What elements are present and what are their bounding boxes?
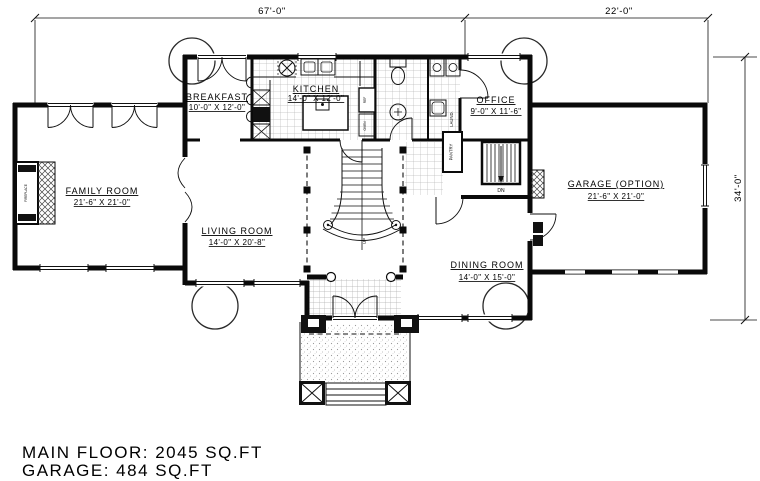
area-summary: MAIN FLOOR: 2045 SQ.FT GARAGE: 484 SQ.FT <box>22 443 263 480</box>
window-living-bottom-1 <box>196 279 244 287</box>
garage-bottom-wall-vents <box>565 270 678 273</box>
ref-label: REF <box>363 97 367 103</box>
garage-name: GARAGE (OPTION) <box>568 179 665 189</box>
window-family-bottom-2 <box>106 264 154 272</box>
breakfast-size: 10'-0" X 12'-0" <box>189 103 246 112</box>
corner-arc-top-right <box>501 38 547 84</box>
family-room-name: FAMILY ROOM <box>66 186 139 196</box>
oven-label: OVEN <box>363 121 367 131</box>
living-room-name: LIVING ROOM <box>201 226 272 236</box>
french-door-family-1 <box>48 102 94 128</box>
corner-arc-bottom-right <box>483 283 529 329</box>
entry-tile-floor <box>309 279 401 317</box>
pantry-label: PANTRY <box>449 143 454 160</box>
dim-right-side: 34'-0" <box>733 174 744 202</box>
floor-plan-page: UP REF OVEN <box>0 0 760 481</box>
refrigerator: REF <box>359 88 375 112</box>
kitchen-name: KITCHEN <box>293 84 340 94</box>
living-room-size: 14'-0" X 20'-8" <box>209 238 266 247</box>
pantry-closet: PANTRY <box>443 132 462 172</box>
corner-arc-top-left <box>169 38 215 84</box>
kitchen-hall-door <box>340 140 362 162</box>
kitchen-size: 14'-0" X 12'-0" <box>288 94 345 103</box>
laundry-label: LAUND. <box>449 111 454 126</box>
rear-hall-door <box>436 197 463 224</box>
fireplace: FIREPLACE <box>16 162 55 224</box>
office-name: OFFICE <box>477 95 516 105</box>
family-room-size: 21'-6" X 21'-0" <box>74 198 131 207</box>
garage-size: 21'-6" X 21'-0" <box>588 192 645 201</box>
entry-column-left <box>327 273 336 282</box>
office-door <box>460 70 488 98</box>
window-office-top <box>468 53 520 61</box>
family-living-opening <box>178 157 192 223</box>
stair-up-label: UP <box>362 238 367 244</box>
foyer-colonnade <box>304 147 407 282</box>
powder-laundry-tile-floor <box>375 57 460 140</box>
window-dining-bottom-1 <box>418 314 462 322</box>
curved-staircase: UP <box>323 144 401 250</box>
fireplace-label: FIREPLACE <box>24 184 28 202</box>
planter-right <box>385 381 411 405</box>
fireplace-hearth <box>38 162 55 224</box>
window-family-bottom-1 <box>40 264 88 272</box>
office-size: 9'-0" X 11'-6" <box>470 107 521 116</box>
window-living-bottom-2 <box>254 279 300 287</box>
garage-area: GARAGE: 484 SQ.FT <box>22 461 213 480</box>
main-floor-area: MAIN FLOOR: 2045 SQ.FT <box>22 443 263 462</box>
french-door-breakfast <box>197 54 247 82</box>
dim-top-main: 67'-0" <box>258 6 286 17</box>
french-door-family-2 <box>112 102 158 128</box>
rear-hall-tile-floor <box>405 142 443 195</box>
window-kitchen-sink <box>298 53 336 61</box>
window-dining-bottom-2 <box>468 314 512 322</box>
breakfast-name: BREAKFAST <box>186 92 248 102</box>
chimney <box>531 170 544 198</box>
basement-stair: DN <box>482 142 520 194</box>
dining-room-name: DINING ROOM <box>451 260 524 270</box>
entry-column-right <box>387 273 396 282</box>
floor-plan-drawing: UP REF OVEN <box>0 0 760 481</box>
planter-left <box>299 381 325 405</box>
corner-arc-bottom-left <box>192 283 238 329</box>
garage-side-door-opening <box>701 164 709 208</box>
dining-room-size: 14'-0" X 15'-0" <box>459 273 516 282</box>
opening-gap <box>182 157 189 223</box>
dim-top-garage: 22'-0" <box>605 6 633 17</box>
porch-steps <box>326 383 386 405</box>
stair-down-label: DN <box>497 188 505 194</box>
